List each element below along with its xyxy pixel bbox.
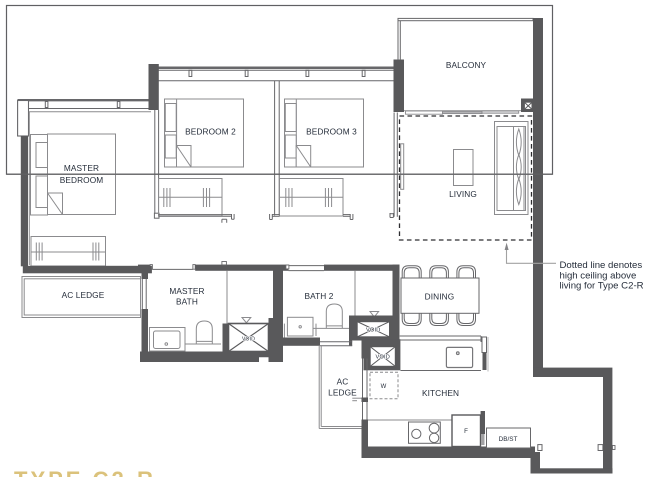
svg-text:BEDROOM 3: BEDROOM 3 xyxy=(306,126,357,136)
svg-text:MASTER: MASTER xyxy=(64,163,99,173)
svg-text:KITCHEN: KITCHEN xyxy=(422,388,459,398)
svg-text:BATH: BATH xyxy=(176,296,198,306)
svg-text:VOID: VOID xyxy=(366,327,380,333)
svg-text:DB/ST: DB/ST xyxy=(499,436,518,443)
svg-text:LIVING: LIVING xyxy=(449,189,477,199)
svg-text:living for Type C2-R: living for Type C2-R xyxy=(560,281,644,292)
svg-text:VOID: VOID xyxy=(376,355,390,361)
svg-text:MASTER: MASTER xyxy=(169,286,204,296)
svg-text:BEDROOM 2: BEDROOM 2 xyxy=(185,126,236,136)
svg-text:DINING: DINING xyxy=(425,291,455,301)
svg-text:W: W xyxy=(381,384,387,390)
svg-text:BEDROOM: BEDROOM xyxy=(60,175,104,185)
svg-text:VOID: VOID xyxy=(242,337,255,343)
svg-text:BALCONY: BALCONY xyxy=(446,60,487,70)
svg-text:TYPE C2-R: TYPE C2-R xyxy=(14,467,156,477)
svg-text:AC: AC xyxy=(337,376,349,386)
svg-text:BATH 2: BATH 2 xyxy=(304,291,333,301)
svg-text:LEDGE: LEDGE xyxy=(328,388,357,398)
svg-text:AC LEDGE: AC LEDGE xyxy=(62,290,105,300)
svg-text:F: F xyxy=(464,428,468,435)
